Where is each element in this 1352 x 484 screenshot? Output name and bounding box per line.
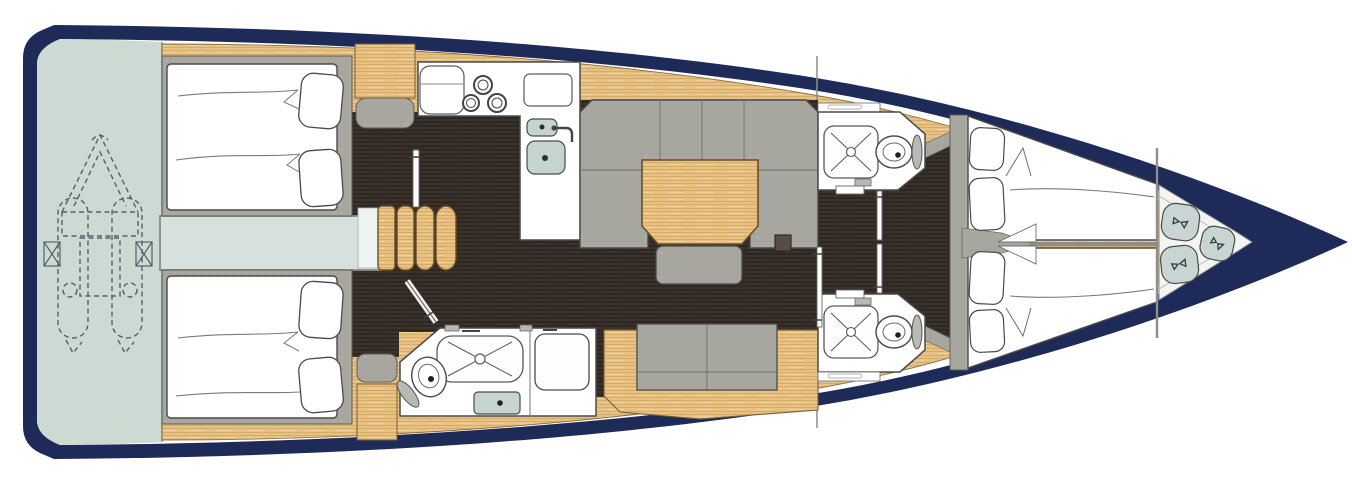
pillow bbox=[969, 251, 1006, 305]
floor-hatch-icon bbox=[775, 235, 791, 251]
sink-icon bbox=[527, 119, 572, 174]
door-leaf-icon bbox=[413, 150, 419, 207]
forward-cabin bbox=[950, 115, 1157, 370]
companionway-stairs bbox=[378, 206, 456, 270]
toilet-icon bbox=[876, 315, 922, 349]
shower-tray-icon bbox=[824, 126, 878, 178]
galley-cabinet bbox=[420, 66, 464, 114]
door-leaf-icon bbox=[877, 244, 882, 293]
dining-table bbox=[642, 160, 758, 244]
shower-tray-icon bbox=[824, 306, 878, 358]
swim-platform bbox=[37, 39, 162, 445]
pillow bbox=[298, 281, 344, 340]
door-leaf-icon bbox=[836, 186, 864, 194]
pillow bbox=[298, 72, 345, 129]
aft-cabin-starboard bbox=[162, 270, 352, 424]
washbasin-icon bbox=[474, 392, 520, 414]
door-leaf-icon bbox=[817, 247, 822, 327]
sideboard-seat-bottom bbox=[357, 354, 397, 382]
pillow bbox=[969, 177, 1006, 231]
pillow bbox=[298, 356, 345, 413]
pillow bbox=[969, 127, 1005, 171]
sideboard-wood-top bbox=[355, 44, 415, 98]
shower-stall bbox=[535, 334, 589, 390]
yacht-floor-plan bbox=[0, 0, 1352, 484]
toilet-icon bbox=[876, 135, 922, 169]
sideboard-seat-top bbox=[356, 98, 414, 128]
side-bench bbox=[604, 324, 818, 419]
deck-plan-canvas bbox=[0, 0, 1352, 484]
door-leaf-icon bbox=[836, 290, 864, 298]
pillow bbox=[298, 149, 344, 208]
stool bbox=[656, 246, 742, 284]
engine-compartment bbox=[160, 208, 380, 270]
sideboard-wood-bottom bbox=[357, 384, 397, 440]
shower-tray-icon bbox=[437, 336, 523, 382]
aft-cabin-port bbox=[162, 56, 352, 216]
worktop-board bbox=[524, 74, 572, 106]
door-leaf-icon bbox=[877, 191, 882, 240]
pillow bbox=[969, 309, 1005, 353]
